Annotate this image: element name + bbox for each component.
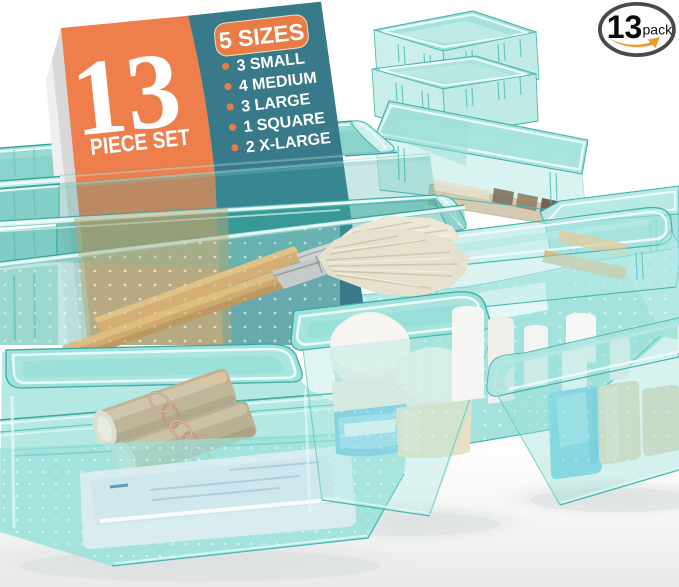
svg-text:13: 13: [607, 9, 643, 45]
svg-text:pack: pack: [643, 22, 674, 38]
